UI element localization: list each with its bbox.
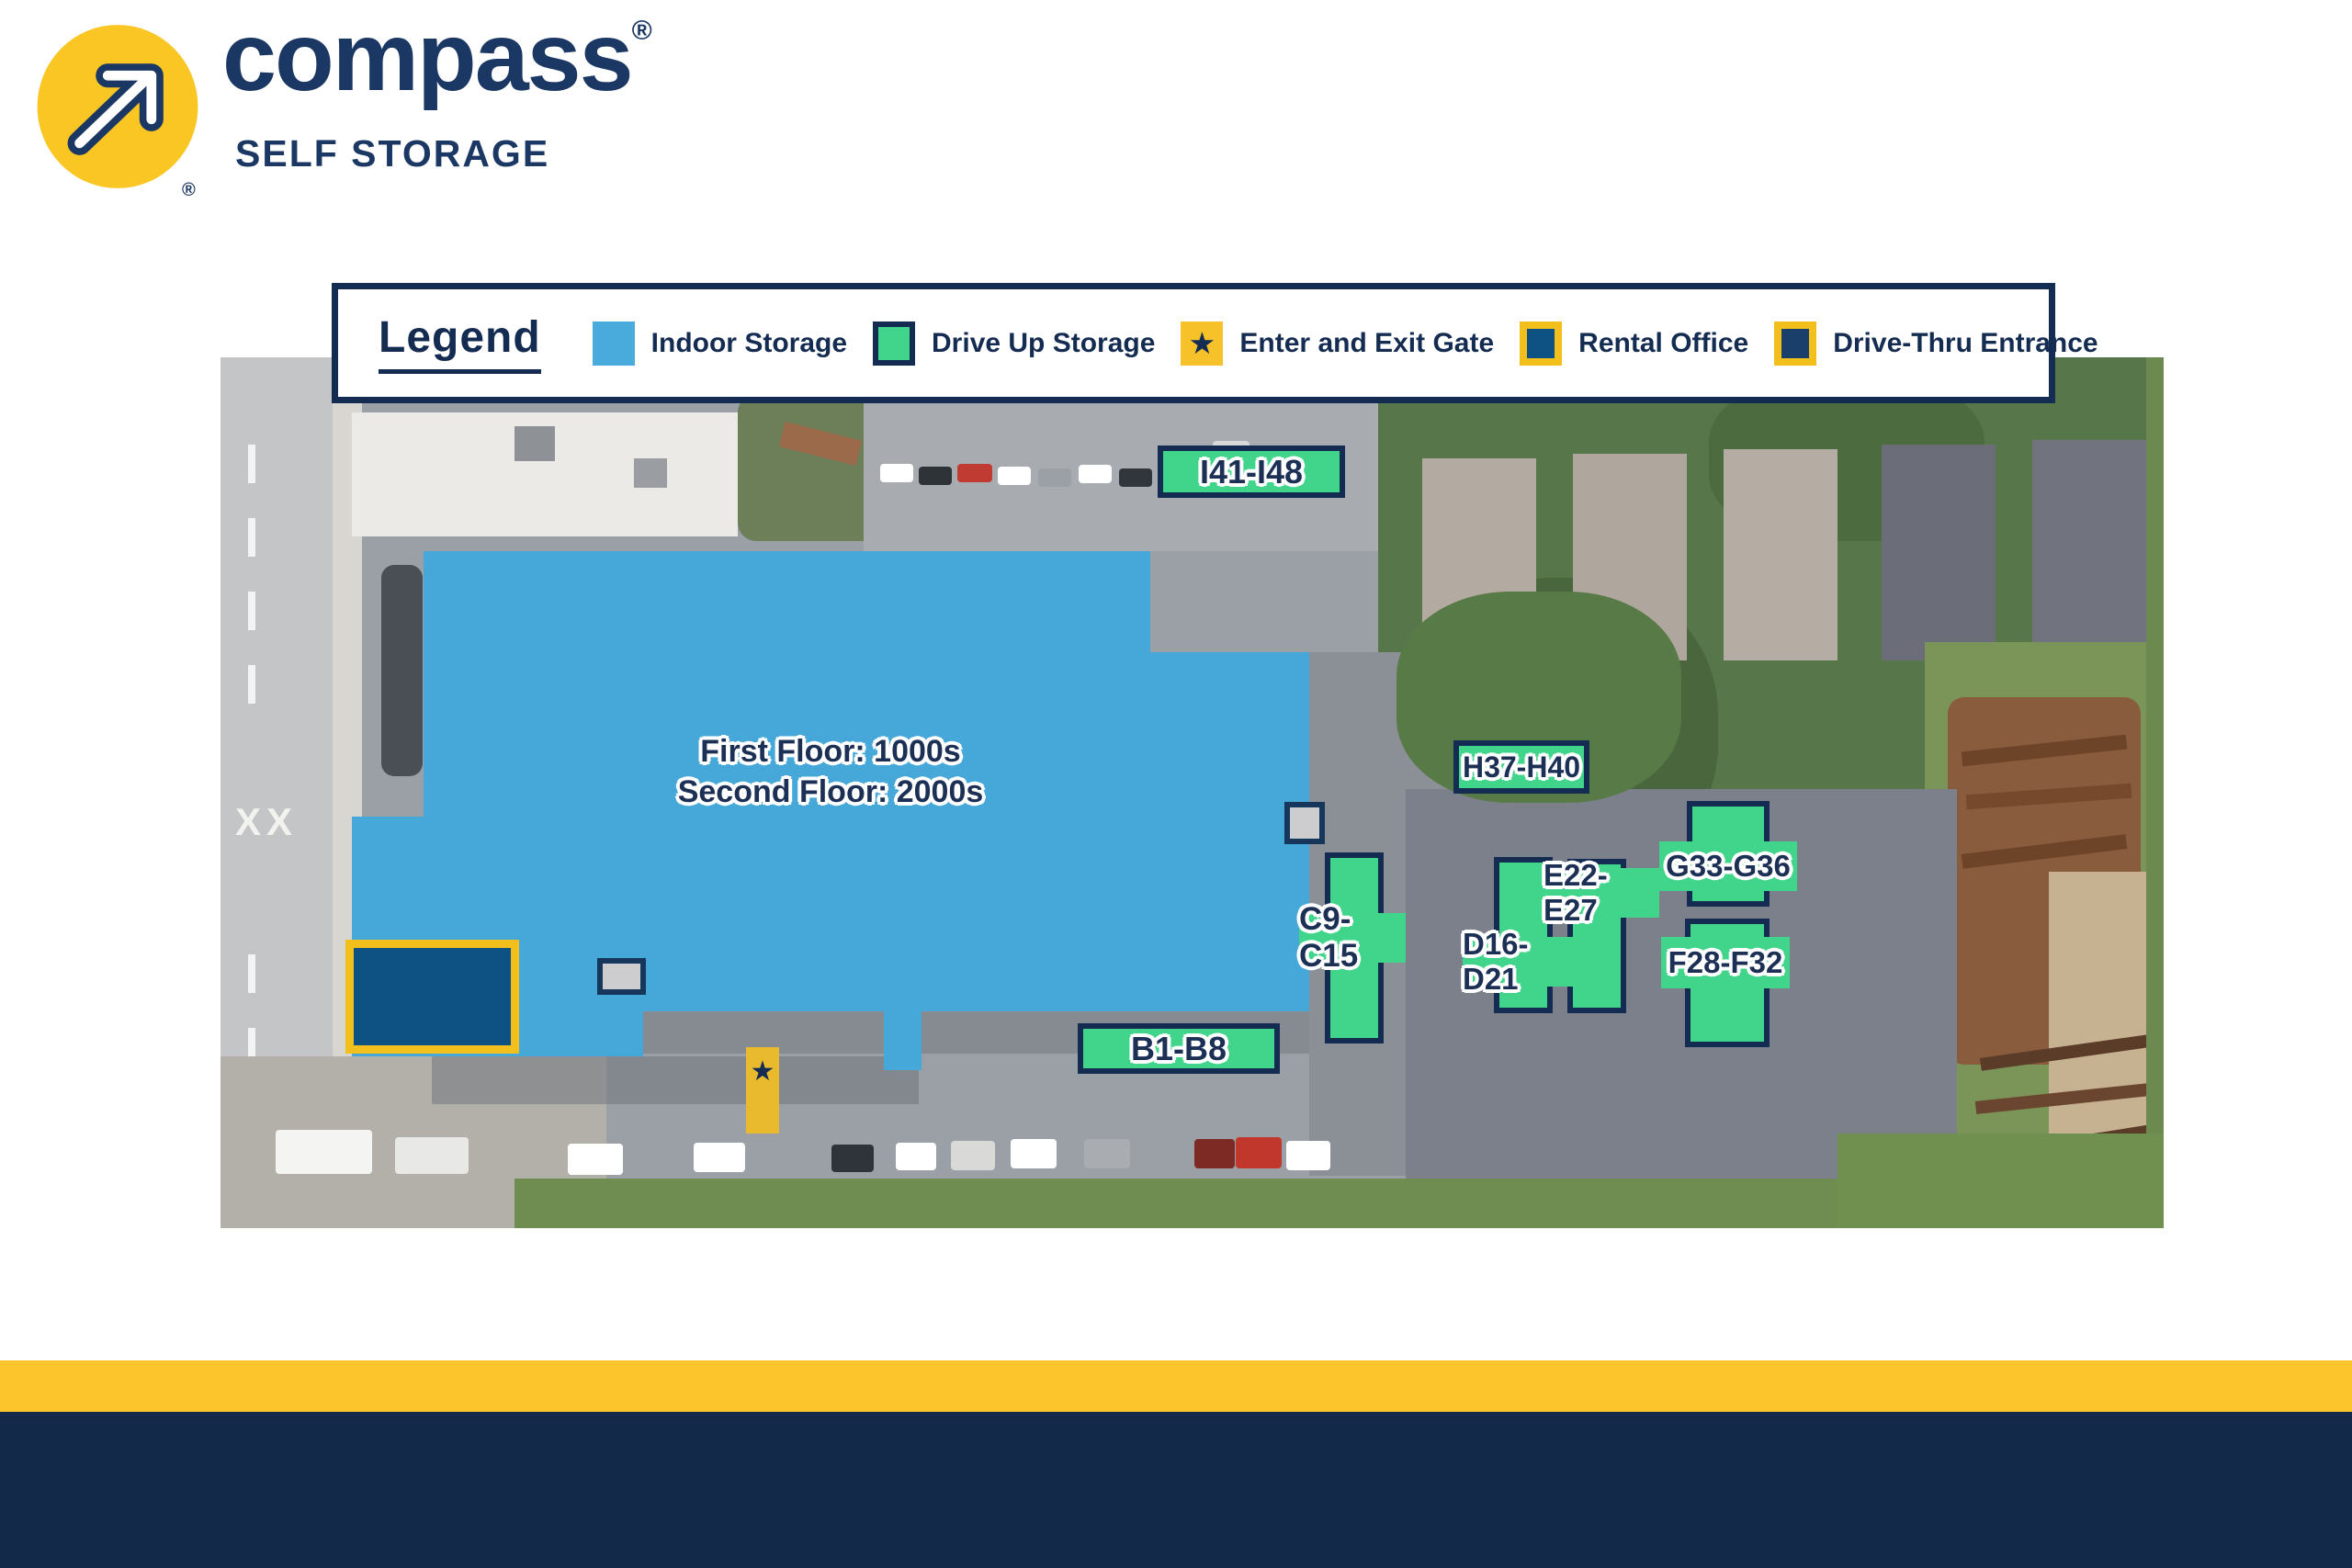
car — [1079, 465, 1112, 483]
car — [1038, 468, 1071, 487]
rental-office-swatch-icon — [1520, 321, 1562, 366]
brand-logo: ® compass® SELF STORAGE — [0, 0, 717, 220]
building-shadow — [432, 1056, 919, 1104]
legend-item-drive-thru-entrance: Drive-Thru Entrance — [1774, 321, 2098, 366]
legend-item-label: Enter and Exit Gate — [1239, 328, 1494, 359]
car — [831, 1145, 874, 1172]
site-map: XX — [220, 357, 2164, 1228]
gate-star-swatch-icon: ★ — [1181, 321, 1223, 366]
truck — [276, 1130, 372, 1174]
legend-item-enter-exit-gate: ★ Enter and Exit Gate — [1181, 321, 1494, 366]
brand-name: compass® — [222, 2, 652, 113]
parked-vehicles-wall — [381, 565, 423, 776]
car — [998, 467, 1031, 485]
star-icon: ★ — [751, 1056, 775, 1087]
lane-dash — [248, 665, 255, 704]
footer-yellow-stripe — [0, 1360, 2352, 1412]
unit-label-c9-c15: C9-C15 — [1299, 913, 1406, 963]
car — [1236, 1137, 1282, 1168]
unit-label-d16-d21: D16-D21 — [1463, 937, 1584, 987]
rental-office-marker — [345, 940, 519, 1054]
legend-item-rental-office: Rental Office — [1520, 321, 1748, 366]
drive-thru-door-left — [597, 958, 646, 995]
legend-item-label: Indoor Storage — [651, 328, 847, 359]
brand-name-text: compass — [222, 3, 632, 111]
rooftop-unit — [634, 458, 667, 488]
legend-title: Legend — [379, 312, 541, 374]
grass-south-east — [1837, 1134, 2164, 1228]
car — [919, 467, 952, 485]
legend-item-label: Rental Office — [1578, 328, 1748, 359]
car — [634, 1141, 685, 1170]
concrete-pad — [1724, 449, 1837, 660]
car — [880, 464, 913, 482]
indoor-storage-swatch-icon — [593, 321, 635, 366]
car — [896, 1143, 936, 1170]
footer-bar: 12 East Oregon Ave, Philadelphia, PA 191… — [0, 1412, 2352, 1568]
first-floor-text: First Floor: 1000s — [352, 731, 1309, 772]
unit-label-b1-b8: B1-B8 — [1078, 1023, 1280, 1074]
drive-thru-swatch-icon — [1774, 321, 1816, 366]
second-floor-text: Second Floor: 2000s — [352, 772, 1309, 812]
registered-mark: ® — [182, 180, 196, 201]
legend-box: Legend Indoor Storage Drive Up Storage ★… — [332, 283, 2055, 403]
unit-label-h37-h40: H37-H40 — [1453, 740, 1589, 794]
compass-arrow-icon — [33, 15, 202, 198]
car — [957, 464, 992, 482]
car — [1194, 1139, 1235, 1168]
truck — [395, 1137, 469, 1174]
rooftop-unit — [514, 426, 555, 461]
unit-label-g33-g36: G33-G36 — [1659, 841, 1797, 891]
car — [1119, 468, 1152, 487]
car — [1084, 1139, 1130, 1168]
car — [1286, 1141, 1330, 1170]
legend-item-label: Drive Up Storage — [932, 328, 1155, 359]
legend-item-indoor-storage: Indoor Storage — [593, 321, 847, 366]
lane-dash — [248, 518, 255, 557]
registered-mark: ® — [632, 16, 652, 46]
brand-tagline: SELF STORAGE — [235, 132, 549, 175]
lane-dash — [248, 445, 255, 483]
concrete-pad — [2032, 440, 2146, 660]
car — [694, 1143, 745, 1172]
main-building-label: First Floor: 1000s Second Floor: 2000s — [352, 731, 1309, 812]
lane-dash — [248, 592, 255, 630]
lane-dash — [248, 954, 255, 993]
unit-label-f28-f32: F28-F32 — [1661, 937, 1790, 988]
drive-thru-door-right — [1284, 802, 1325, 844]
drive-up-storage-swatch-icon — [873, 321, 915, 366]
car — [568, 1144, 623, 1175]
facility-map-page: ® compass® SELF STORAGE Legend Indoor St… — [0, 0, 2352, 1568]
enter-exit-gate-marker: ★ — [746, 1047, 779, 1134]
tree-blob — [2146, 357, 2164, 1228]
unit-label-e22-e27: E22-E27 — [1543, 868, 1659, 918]
unit-label-i41-i48: I41-I48 — [1158, 446, 1345, 498]
legend-item-drive-up-storage: Drive Up Storage — [873, 321, 1155, 366]
scrap-corner — [738, 394, 885, 541]
road-marking: XX — [235, 800, 298, 844]
legend-item-label: Drive-Thru Entrance — [1833, 328, 2098, 359]
star-icon: ★ — [1189, 328, 1216, 358]
car — [1011, 1139, 1057, 1168]
concrete-pad — [1882, 445, 1996, 660]
car — [951, 1141, 995, 1170]
